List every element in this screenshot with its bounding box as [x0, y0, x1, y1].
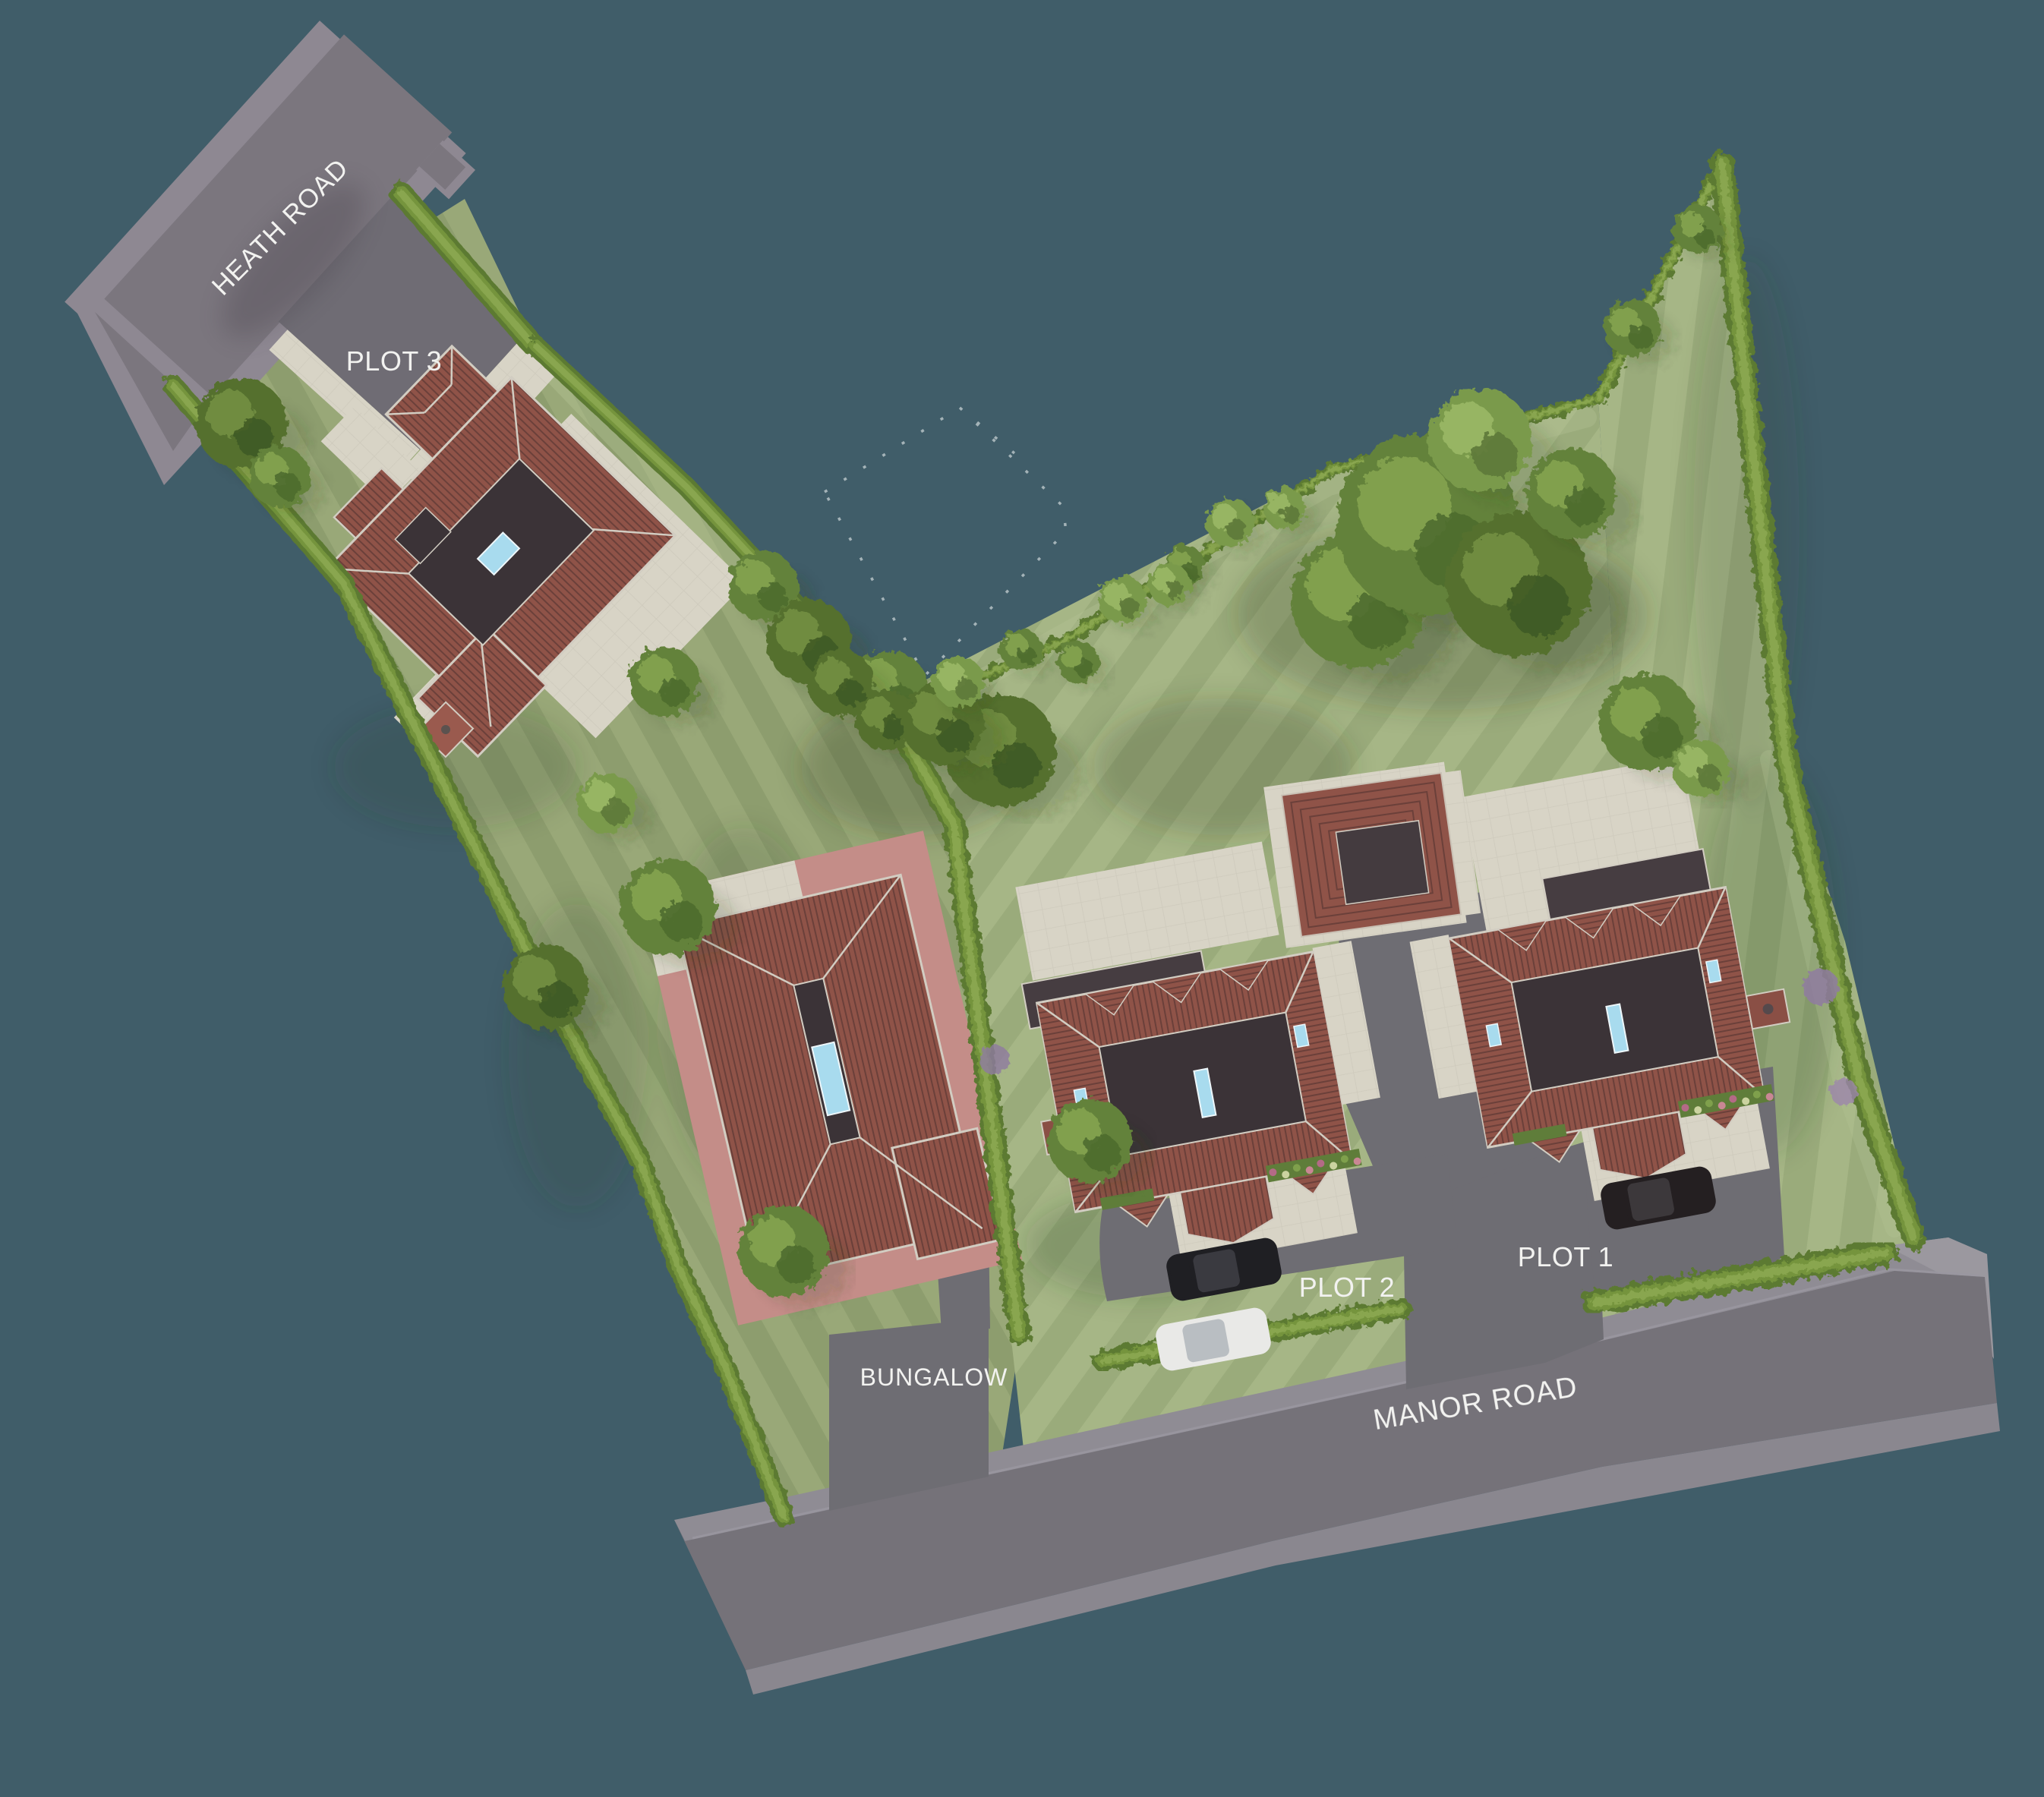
svg-text:BUNGALOW: BUNGALOW	[860, 1364, 1008, 1391]
svg-text:PLOT 2: PLOT 2	[1299, 1272, 1395, 1303]
svg-text:PLOT 1: PLOT 1	[1518, 1241, 1613, 1272]
svg-text:PLOT 3: PLOT 3	[346, 345, 442, 377]
